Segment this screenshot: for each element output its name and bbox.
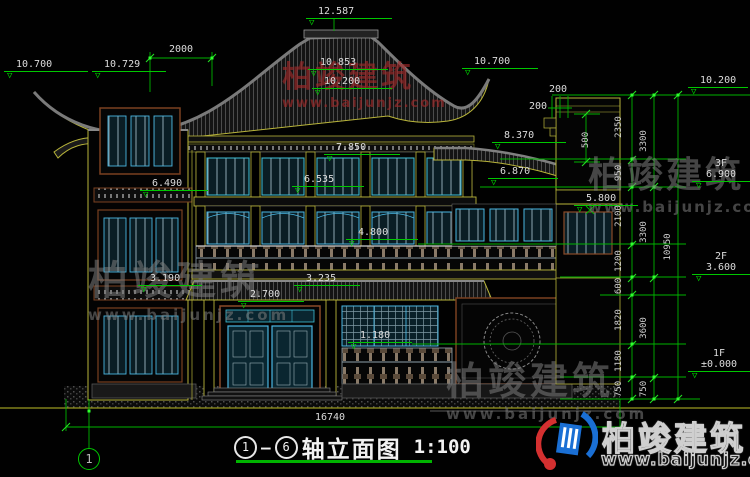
watermark-left: 柏竣建筑 www.baijunjz.com (88, 248, 289, 324)
dim-overall-height: 10950 (663, 227, 677, 267)
elevation-label-porch: 2.700▽ (238, 288, 304, 302)
elevation-label-center-lower: 10.200▽ (312, 75, 392, 89)
elevation-label-rail-1f: 1.180▽ (348, 329, 412, 343)
level-marker-icon: ▽ (692, 372, 697, 381)
elevation-label-tower-lower: 3.190▽ (138, 272, 202, 286)
drawing-title-text: 轴立面图 (302, 430, 402, 464)
baijun-logo-icon (536, 408, 598, 474)
elevation-label-beam-3f: 6.535▽ (292, 173, 364, 187)
level-marker-icon: ▽ (309, 19, 314, 28)
elevation-label-tower-upper: 6.490▽ (140, 177, 208, 191)
axis-bubble-1: 1 (78, 448, 100, 470)
elevation-label-left-eave: 10.700▽ (4, 58, 88, 72)
level-marker-icon: ▽ (696, 182, 701, 191)
dim-middle-750: 750 (639, 369, 653, 409)
level-marker-icon: ▽ (295, 187, 300, 196)
elevation-label-balcony-3f: 7.850▽ (324, 141, 400, 155)
elevation-label-beam-2f: 3.235▽ (294, 272, 360, 286)
axis-end-bubble: 6 (275, 436, 298, 459)
level-marker-icon: ▽ (327, 155, 332, 164)
drawing-scale: 1:100 (414, 436, 471, 458)
elevation-label-right-eave: 10.700▽ (462, 55, 538, 69)
watermark-url: www.baijunjz.com (282, 96, 447, 111)
level-marker-icon: ▽ (577, 206, 582, 215)
elevation-label-right-parapet: 10.200▽ (688, 74, 748, 88)
axis-start-bubble: 1 (234, 436, 257, 459)
level-marker-icon: ▽ (691, 88, 696, 97)
floor-level-2f: 2F3.600 ▽ (692, 251, 750, 275)
title-underline (236, 460, 432, 463)
dim-inner-950: 950 (614, 153, 628, 193)
dim-middle-3600: 3600 (639, 308, 653, 348)
level-marker-icon: ▽ (143, 191, 148, 200)
dim-parapet-200a: 200 (544, 84, 572, 95)
level-marker-icon: ▽ (696, 275, 701, 284)
level-marker-icon: ▽ (465, 69, 470, 78)
elevation-label-wing-roof-low: 6.870▽ (488, 165, 558, 179)
dim-middle-3300a: 3300 (639, 121, 653, 161)
dim-inner-750: 750 (614, 369, 628, 409)
watermark-url: www.baijunjz.com (88, 306, 289, 324)
axis-separator: — (261, 438, 271, 457)
floor-level-3f: 3F6.900 ▽ (692, 158, 750, 182)
floor-level-1f: 1F±0.000 ▽ (688, 348, 750, 372)
level-marker-icon: ▽ (495, 143, 500, 152)
dim-parapet-500: 500 (581, 120, 595, 160)
level-marker-icon: ▽ (95, 72, 100, 81)
level-marker-icon: ▽ (491, 179, 496, 188)
drawing-title: 1 — 6 轴立面图 1:100 (234, 430, 471, 464)
elevation-label-left-eave-inner: 10.729▽ (92, 58, 166, 72)
dim-top-offset-2000: 2000 (155, 44, 207, 55)
dim-middle-3300b: 3300 (639, 212, 653, 252)
dim-parapet-200b: 200 (524, 101, 552, 112)
level-marker-icon: ▽ (7, 72, 12, 81)
level-marker-icon: ▽ (141, 286, 146, 295)
level-marker-icon: ▽ (241, 302, 246, 311)
level-marker-icon: ▽ (351, 343, 356, 352)
elevation-label-wing-roof: 8.370▽ (492, 129, 566, 143)
watermark-logo-block: 柏竣建筑 www.baijunjz.com (536, 408, 750, 474)
dim-inner-2100: 2100 (614, 196, 628, 236)
cad-elevation-sheet: 柏竣建筑 www.baijunjz.com 柏竣建筑 www.baijunjz.… (0, 0, 750, 477)
dim-inner-2350: 2350 (614, 107, 628, 147)
watermark-url: www.baijunjz.com (601, 450, 750, 470)
elevation-label-center-upper: 10.853▽ (308, 56, 388, 70)
dim-overall-width-16740: 16740 (292, 412, 368, 423)
elevation-label-right-wall: 5.800▽ (574, 192, 638, 206)
level-marker-icon: ▽ (315, 89, 320, 98)
level-marker-icon: ▽ (349, 240, 354, 249)
elevation-label-ridge: 12.587▽ (306, 5, 392, 19)
dim-inner-1820: 1820 (614, 300, 628, 340)
elevation-label-balcony-2f: 4.800▽ (346, 226, 418, 240)
